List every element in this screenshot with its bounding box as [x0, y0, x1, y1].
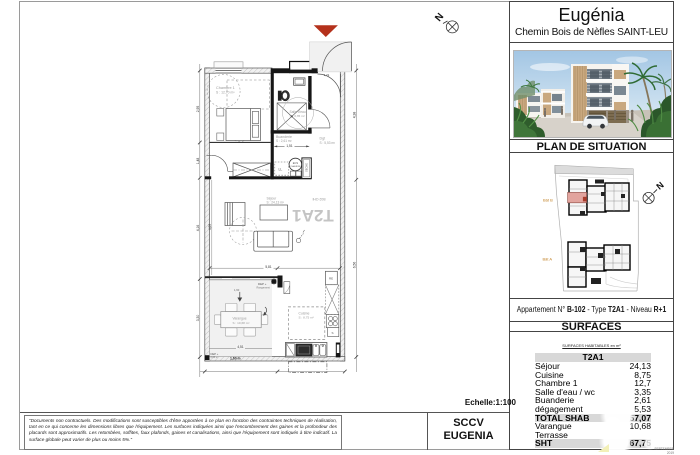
svg-text:ECS: ECS	[293, 161, 299, 165]
svg-text:T2A1: T2A1	[292, 206, 334, 225]
svg-text:Bât B: Bât B	[543, 198, 553, 203]
svg-text:1,51: 1,51	[286, 144, 292, 148]
svg-text:4,51: 4,51	[237, 345, 243, 349]
svg-text:S: S	[332, 331, 334, 335]
svg-text:4,05: 4,05	[208, 224, 212, 230]
svg-text:CHAUFFE: CHAUFFE	[290, 165, 301, 168]
svg-text:S : 12,70 m²: S : 12,70 m²	[216, 91, 235, 95]
svg-text:SECHE: SECHE	[305, 163, 309, 172]
svg-text:N: N	[433, 11, 446, 24]
svg-text:S : 5,53 m²: S : 5,53 m²	[320, 141, 336, 145]
svg-text:S : 3,35 m²: S : 3,35 m²	[290, 114, 305, 118]
svg-text:1,21: 1,21	[324, 73, 330, 77]
svg-text:B02 GHI: B02 GHI	[312, 197, 325, 201]
svg-text:LL: LL	[279, 168, 283, 172]
svg-text:6,56: 6,56	[352, 262, 356, 269]
svg-text:S : 2,61 m²: S : 2,61 m²	[276, 139, 292, 143]
svg-text:3,30: 3,30	[196, 315, 200, 322]
svg-text:1,48: 1,48	[196, 158, 200, 165]
svg-text:Bât A: Bât A	[543, 257, 553, 262]
svg-text:S : 24,13 m²: S : 24,13 m²	[267, 201, 284, 205]
svg-text:Chambre 1: Chambre 1	[216, 86, 235, 90]
svg-text:1,60 m: 1,60 m	[230, 356, 241, 360]
svg-text:4,38: 4,38	[352, 112, 356, 119]
svg-text:4,16: 4,16	[196, 225, 200, 232]
svg-text:RE: RE	[329, 277, 333, 281]
svg-text:Rangement: Rangement	[257, 285, 271, 289]
svg-text:2,95: 2,95	[196, 106, 200, 113]
svg-text:5,81: 5,81	[265, 265, 271, 269]
svg-text:0,00 m: 0,00 m	[211, 356, 218, 359]
svg-text:S : 8,75 m²: S : 8,75 m²	[299, 316, 314, 320]
svg-text:1,60: 1,60	[234, 288, 240, 292]
svg-text:S : 10,68 m²: S : 10,68 m²	[233, 321, 250, 325]
svg-text:Dgt: Dgt	[320, 137, 326, 141]
